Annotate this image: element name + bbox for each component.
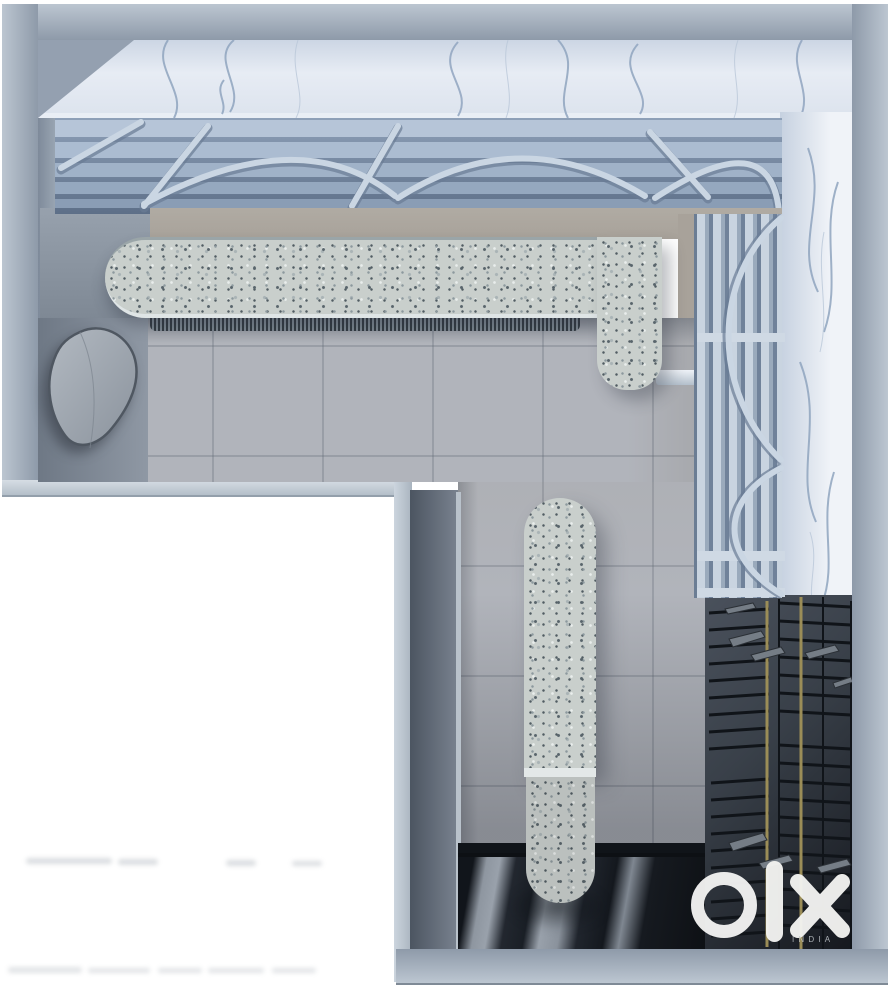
vertical-counter-edge <box>524 768 596 777</box>
india-label: INDIA <box>792 935 834 944</box>
faint-smudge <box>292 861 322 866</box>
unit-shelf <box>697 551 785 561</box>
vertical-display-counter <box>524 498 596 772</box>
display-wall-unit <box>694 214 782 598</box>
outer-wall-bottom <box>396 949 888 985</box>
ceiling-slat <box>55 163 782 177</box>
unit-shelf <box>697 588 785 597</box>
olx-letter-l <box>766 861 783 942</box>
outer-wall-left <box>2 4 38 497</box>
interior-render-top-view: INDIA <box>0 0 890 999</box>
display-shoes <box>725 603 852 873</box>
olx-letter-x <box>786 874 852 938</box>
ceiling-slat <box>55 120 782 137</box>
faint-smudge <box>208 968 264 973</box>
vertical-counter-side <box>526 777 595 903</box>
terrazzo-counter-return <box>597 237 662 390</box>
corridor-concrete-wall <box>410 490 458 955</box>
marble-veins-top <box>38 40 852 118</box>
olx-watermark: INDIA <box>688 858 858 950</box>
faint-smudge <box>158 968 202 973</box>
marble-wall-top <box>38 40 852 118</box>
terrazzo-counter <box>105 237 602 318</box>
olx-letter-o <box>691 872 757 938</box>
ceiling-slat <box>55 142 782 158</box>
marble-veins-right <box>780 112 852 608</box>
faint-smudge <box>118 859 158 865</box>
faint-smudge <box>88 968 150 973</box>
ceiling-slat <box>55 182 782 194</box>
corridor-wall-bottom-left <box>2 480 394 497</box>
ceiling-louvers <box>55 118 782 214</box>
marble-wall-right <box>780 112 852 608</box>
ceiling-slat <box>55 199 782 208</box>
faint-smudge <box>226 860 256 866</box>
faint-smudge <box>272 968 316 973</box>
unit-shelf <box>697 333 785 342</box>
floor-shaded-left <box>38 318 148 482</box>
faint-smudge <box>26 858 112 864</box>
unit-arched-ribs <box>697 214 785 598</box>
faint-smudge <box>8 967 82 973</box>
outer-wall-right <box>852 4 888 985</box>
outer-wall-top <box>2 4 888 40</box>
